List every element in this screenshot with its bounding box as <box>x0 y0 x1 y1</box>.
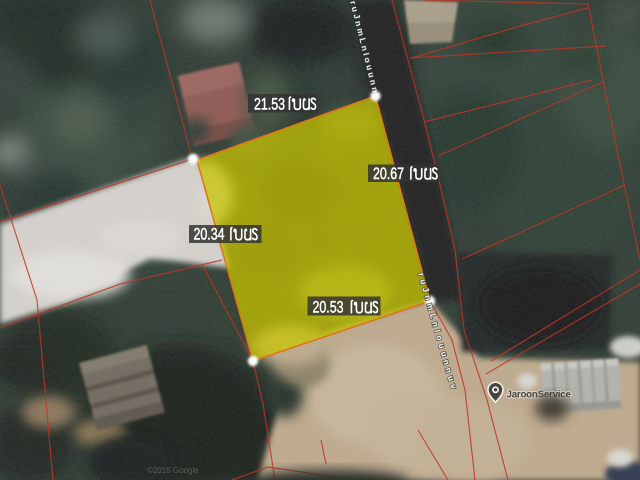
svg-text:20.34: 20.34 <box>194 225 225 244</box>
svg-text:20.53: 20.53 <box>313 298 344 317</box>
svg-text:21.53: 21.53 <box>254 95 285 114</box>
svg-text:©2015 Google: ©2015 Google <box>147 466 199 475</box>
svg-text:20.67: 20.67 <box>373 164 404 183</box>
